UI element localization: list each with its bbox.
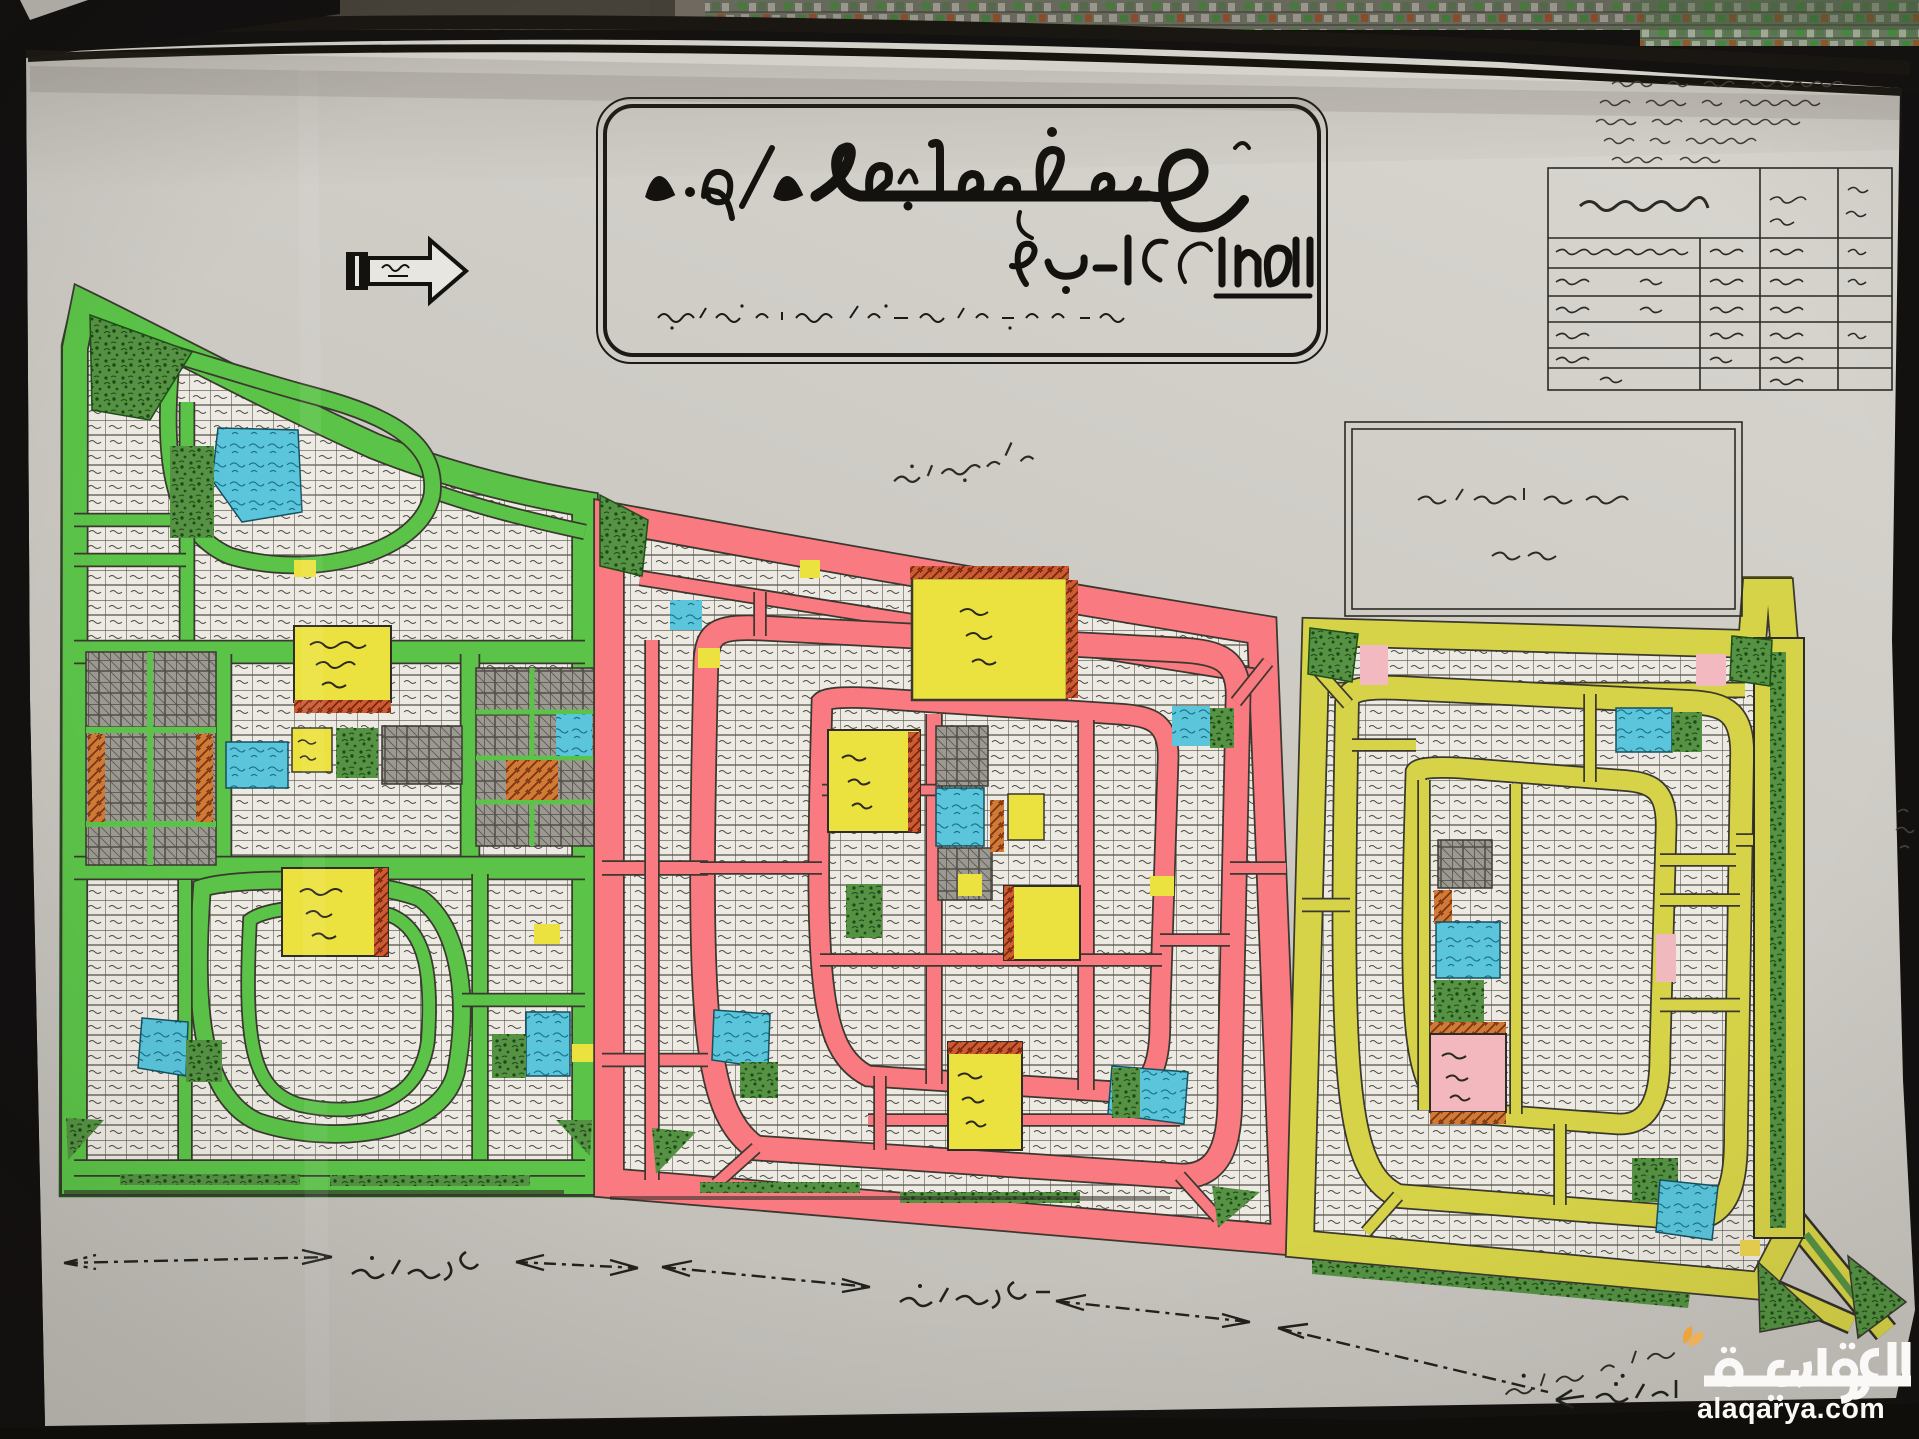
svg-text:alaqarya.com: alaqarya.com (1697, 1393, 1885, 1425)
